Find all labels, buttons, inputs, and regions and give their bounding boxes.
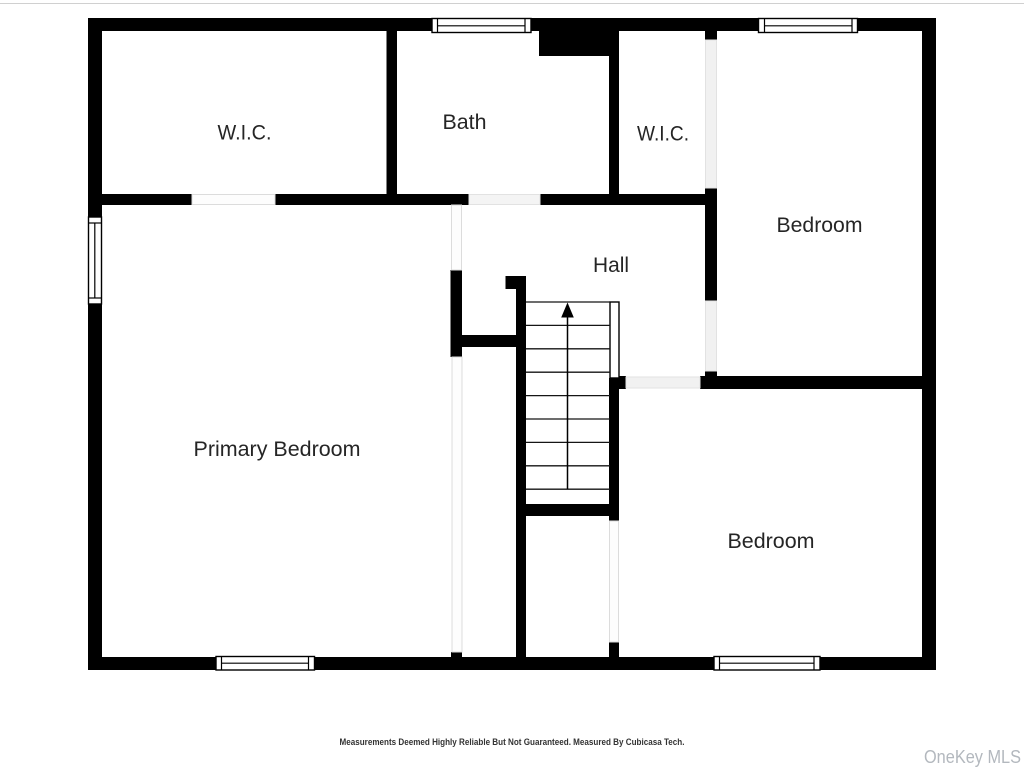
svg-text:W.I.C.: W.I.C.	[218, 122, 272, 145]
svg-text:Bath: Bath	[443, 111, 487, 134]
svg-text:Hall: Hall	[593, 254, 629, 277]
svg-text:W.I.C.: W.I.C.	[637, 123, 689, 146]
svg-text:Bedroom: Bedroom	[728, 530, 815, 553]
svg-text:Bedroom: Bedroom	[777, 214, 863, 237]
svg-text:Primary Bedroom: Primary Bedroom	[194, 438, 361, 461]
svg-text:Measurements Deemed Highly Rel: Measurements Deemed Highly Reliable But …	[340, 737, 685, 748]
svg-text:OneKey MLS: OneKey MLS	[924, 747, 1021, 767]
